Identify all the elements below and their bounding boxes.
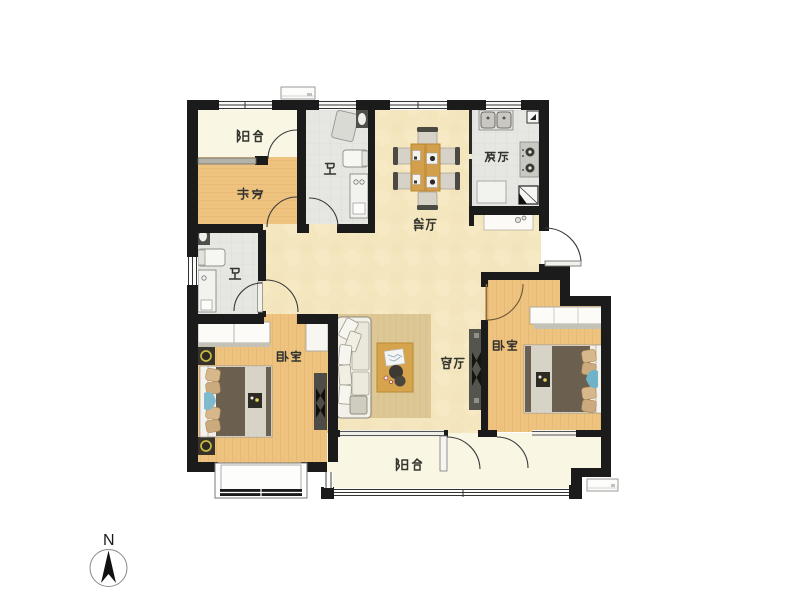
svg-text:N: N <box>103 532 115 549</box>
